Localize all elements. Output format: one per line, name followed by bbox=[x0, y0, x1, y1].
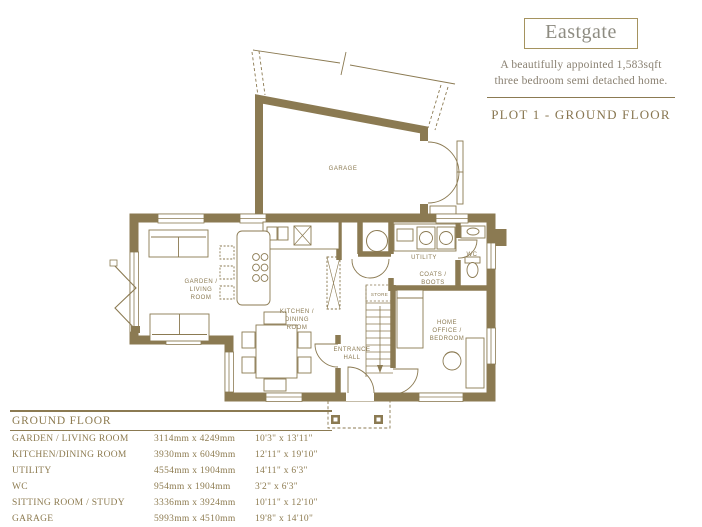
description-line: three bedroom semi detached home. bbox=[487, 73, 675, 89]
room-size-metric: 4554mm x 1904mm bbox=[154, 466, 255, 476]
svg-text:HALL: HALL bbox=[343, 355, 360, 361]
room-label-kitchen: KITCHEN / bbox=[280, 309, 314, 315]
svg-text:ROOM: ROOM bbox=[191, 295, 212, 301]
cylinder-icon bbox=[367, 231, 388, 252]
room-size-metric: 3336mm x 3924mm bbox=[154, 498, 255, 508]
room-label-entrance: ENTRANCE bbox=[333, 347, 370, 353]
room-name: WC bbox=[12, 482, 154, 492]
property-title-box: Eastgate bbox=[524, 18, 638, 49]
room-label-garden: GARDEN / bbox=[184, 279, 217, 285]
svg-text:LIVING: LIVING bbox=[190, 287, 213, 293]
table-row: GARAGE 5993mm x 4510mm 19'8" x 14'10" bbox=[10, 511, 332, 527]
room-name: UTILITY bbox=[12, 466, 154, 476]
room-dimensions-table: GROUND FLOOR GARDEN / LIVING ROOM 3114mm… bbox=[10, 410, 332, 527]
room-name: GARDEN / LIVING ROOM bbox=[12, 434, 154, 444]
table-row: GARDEN / LIVING ROOM 3114mm x 4249mm 10'… bbox=[10, 431, 332, 447]
svg-text:BEDROOM: BEDROOM bbox=[430, 336, 465, 342]
garage-doors-icon bbox=[428, 141, 463, 214]
porch-icon bbox=[328, 401, 390, 428]
window bbox=[487, 328, 496, 364]
svg-text:DINING: DINING bbox=[285, 317, 309, 323]
room-label-utility: UTILITY bbox=[411, 255, 437, 261]
table-row: WC 954mm x 1904mm 3'2" x 6'3" bbox=[10, 479, 332, 495]
room-size-metric: 5993mm x 4510mm bbox=[154, 514, 255, 524]
room-name: KITCHEN/DINING ROOM bbox=[12, 450, 154, 460]
description-line: A beautifully appointed 1,583sqft bbox=[487, 57, 675, 73]
room-size-metric: 3114mm x 4249mm bbox=[154, 434, 255, 444]
divider-line bbox=[487, 97, 675, 98]
room-size-imperial: 10'11" x 12'10" bbox=[255, 498, 332, 508]
room-size-imperial: 10'3" x 13'11" bbox=[255, 434, 332, 444]
table-title: GROUND FLOOR bbox=[10, 412, 332, 431]
room-size-metric: 3930mm x 6049mm bbox=[154, 450, 255, 460]
room-label-wc: WC bbox=[467, 252, 478, 258]
plot-label: PLOT 1 - GROUND FLOOR bbox=[487, 107, 675, 123]
window bbox=[240, 214, 266, 223]
svg-text:ROOM: ROOM bbox=[287, 325, 308, 331]
table-row: KITCHEN/DINING ROOM 3930mm x 6049mm 12'1… bbox=[10, 447, 332, 463]
property-title: Eastgate bbox=[545, 21, 617, 43]
window bbox=[266, 393, 302, 402]
room-label-office: HOME bbox=[437, 320, 457, 326]
room-size-imperial: 12'11" x 19'10" bbox=[255, 450, 332, 460]
room-size-metric: 954mm x 1904mm bbox=[154, 482, 255, 492]
window bbox=[487, 243, 496, 269]
svg-text:BOOTS: BOOTS bbox=[421, 280, 445, 286]
garage-walls bbox=[259, 99, 424, 222]
window bbox=[436, 214, 468, 223]
room-label-coats: COATS / bbox=[419, 272, 446, 278]
room-name: SITTING ROOM / STUDY bbox=[12, 498, 154, 508]
window bbox=[419, 393, 463, 402]
flue-stub bbox=[496, 229, 507, 246]
table-row: UTILITY 4554mm x 1904mm 14'11" x 6'3" bbox=[10, 463, 332, 479]
window bbox=[225, 352, 234, 392]
room-name: GARAGE bbox=[12, 514, 154, 524]
room-label-garage: GARAGE bbox=[329, 166, 358, 172]
french-doors-icon bbox=[110, 252, 140, 333]
utility-appliances-icon bbox=[394, 224, 456, 251]
property-description: A beautifully appointed 1,583sqft three … bbox=[487, 57, 675, 89]
table-row: SITTING ROOM / STUDY 3336mm x 3924mm 10'… bbox=[10, 495, 332, 511]
room-size-imperial: 3'2" x 6'3" bbox=[255, 482, 332, 492]
window bbox=[158, 214, 204, 223]
room-size-imperial: 14'11" x 6'3" bbox=[255, 466, 332, 476]
room-label-store: STORE bbox=[371, 292, 388, 297]
info-panel: Eastgate A beautifully appointed 1,583sq… bbox=[487, 18, 675, 123]
svg-text:OFFICE /: OFFICE / bbox=[432, 328, 461, 334]
room-size-imperial: 19'8" x 14'10" bbox=[255, 514, 332, 524]
